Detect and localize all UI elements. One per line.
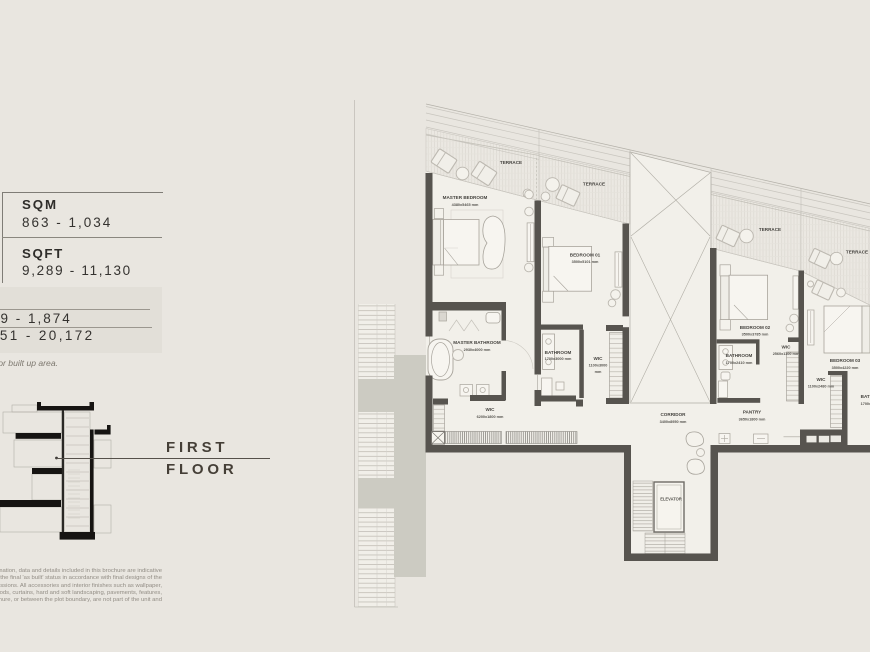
svg-text:BEDROOM 01: BEDROOM 01 xyxy=(570,253,601,258)
svg-text:MASTER BEDROOM: MASTER BEDROOM xyxy=(443,195,488,200)
svg-text:3500x3785 mm: 3500x3785 mm xyxy=(742,332,769,336)
svg-text:mm: mm xyxy=(595,370,602,374)
svg-text:3400x8950 mm: 3400x8950 mm xyxy=(660,420,687,424)
svg-text:BATHROOM: BATHROOM xyxy=(726,353,753,358)
svg-text:1700x2410 mm: 1700x2410 mm xyxy=(726,361,753,365)
svg-text:3650x1800 mm: 3650x1800 mm xyxy=(739,418,766,422)
svg-text:BATHROOM: BATHROOM xyxy=(545,350,572,355)
svg-text:BEDROOM 03: BEDROOM 03 xyxy=(830,358,861,363)
svg-text:CORRIDOR: CORRIDOR xyxy=(660,412,686,417)
svg-text:TERRACE: TERRACE xyxy=(500,160,522,165)
svg-text:1100x2480 mm: 1100x2480 mm xyxy=(808,385,835,389)
svg-text:ELEVATOR: ELEVATOR xyxy=(660,497,682,502)
svg-text:WIC: WIC xyxy=(486,407,496,412)
svg-text:4380x5465 mm: 4380x5465 mm xyxy=(452,203,479,207)
svg-text:BATHROOM: BATHROOM xyxy=(861,394,870,399)
svg-text:WIC: WIC xyxy=(594,356,604,361)
svg-text:1100x3000: 1100x3000 xyxy=(589,364,608,368)
svg-text:2560x1100 mm: 2560x1100 mm xyxy=(773,352,800,356)
svg-text:WIC: WIC xyxy=(817,377,827,382)
svg-text:3500x4220 mm: 3500x4220 mm xyxy=(832,366,859,370)
svg-text:TERRACE: TERRACE xyxy=(759,227,781,232)
svg-text:6200x1800 mm: 6200x1800 mm xyxy=(477,415,504,419)
svg-text:MASTER BATHROOM: MASTER BATHROOM xyxy=(453,340,501,345)
svg-text:BEDROOM 02: BEDROOM 02 xyxy=(740,325,771,330)
svg-text:3500x5101 mm: 3500x5101 mm xyxy=(572,260,599,264)
svg-text:1700x3000 mm: 1700x3000 mm xyxy=(545,357,572,361)
svg-text:TERRACE: TERRACE xyxy=(846,250,868,255)
svg-text:PANTRY: PANTRY xyxy=(743,410,761,415)
svg-text:2930x4000 mm: 2930x4000 mm xyxy=(464,348,491,352)
svg-text:1700x2910 mm: 1700x2910 mm xyxy=(861,402,870,406)
svg-text:TERRACE: TERRACE xyxy=(583,182,605,187)
svg-text:WIC: WIC xyxy=(782,345,792,350)
